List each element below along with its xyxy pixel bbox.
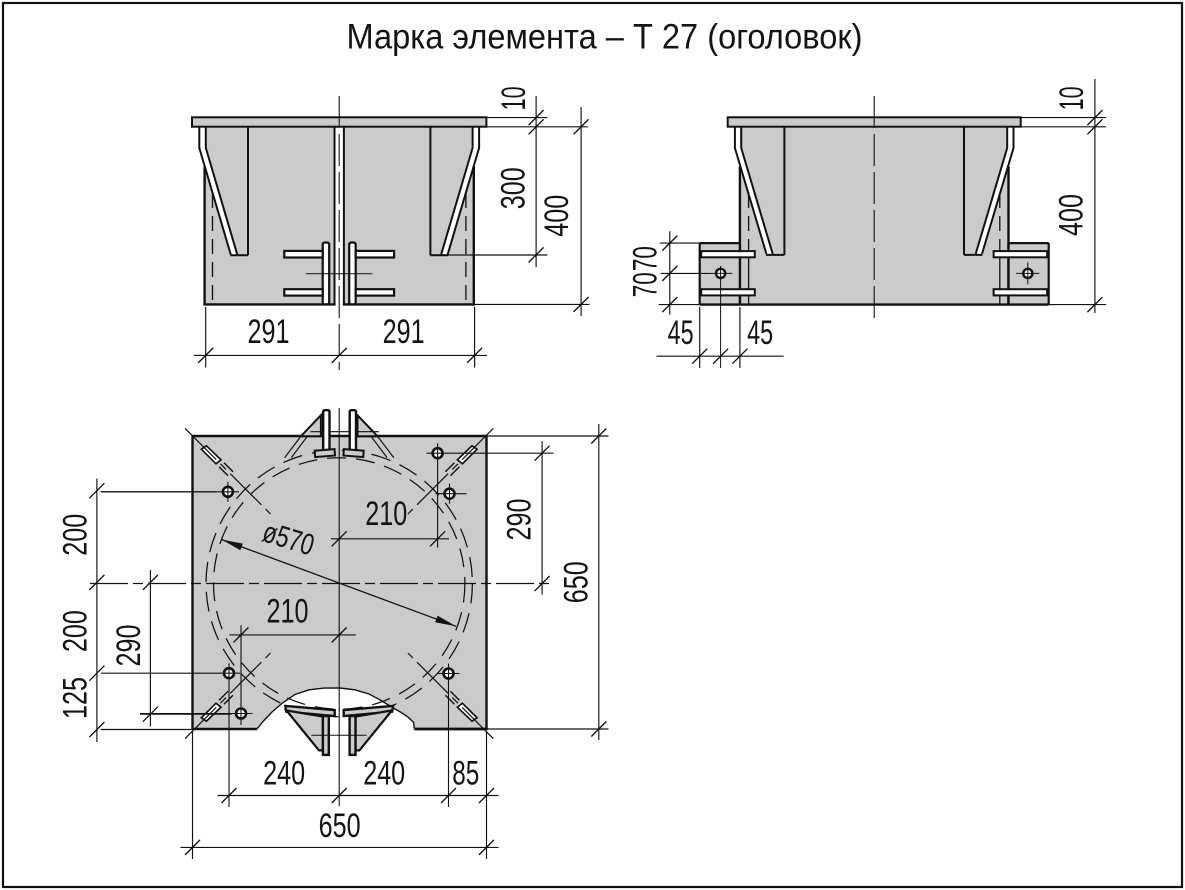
svg-text:210: 210 <box>365 495 407 533</box>
svg-text:210: 210 <box>267 593 309 631</box>
svg-text:290: 290 <box>500 499 538 541</box>
svg-text:70: 70 <box>627 272 665 297</box>
svg-text:125: 125 <box>57 677 95 719</box>
svg-text:45: 45 <box>747 314 773 352</box>
svg-text:291: 291 <box>383 313 425 351</box>
svg-text:290: 290 <box>110 625 148 667</box>
svg-text:85: 85 <box>452 755 479 793</box>
svg-text:240: 240 <box>363 755 405 793</box>
svg-text:200: 200 <box>57 610 95 652</box>
svg-text:45: 45 <box>668 314 694 352</box>
svg-text:400: 400 <box>538 195 576 237</box>
svg-text:291: 291 <box>248 313 290 351</box>
svg-text:10: 10 <box>495 86 533 110</box>
svg-text:400: 400 <box>1053 194 1091 236</box>
svg-text:650: 650 <box>319 807 361 845</box>
svg-text:650: 650 <box>558 561 596 603</box>
svg-text:70: 70 <box>627 246 665 271</box>
svg-text:Марка элемента – Т 27 (оголово: Марка элемента – Т 27 (оголовок) <box>347 17 863 56</box>
svg-text:10: 10 <box>1053 86 1091 110</box>
svg-text:200: 200 <box>57 514 95 556</box>
svg-text:300: 300 <box>494 167 532 209</box>
svg-text:240: 240 <box>263 755 305 793</box>
